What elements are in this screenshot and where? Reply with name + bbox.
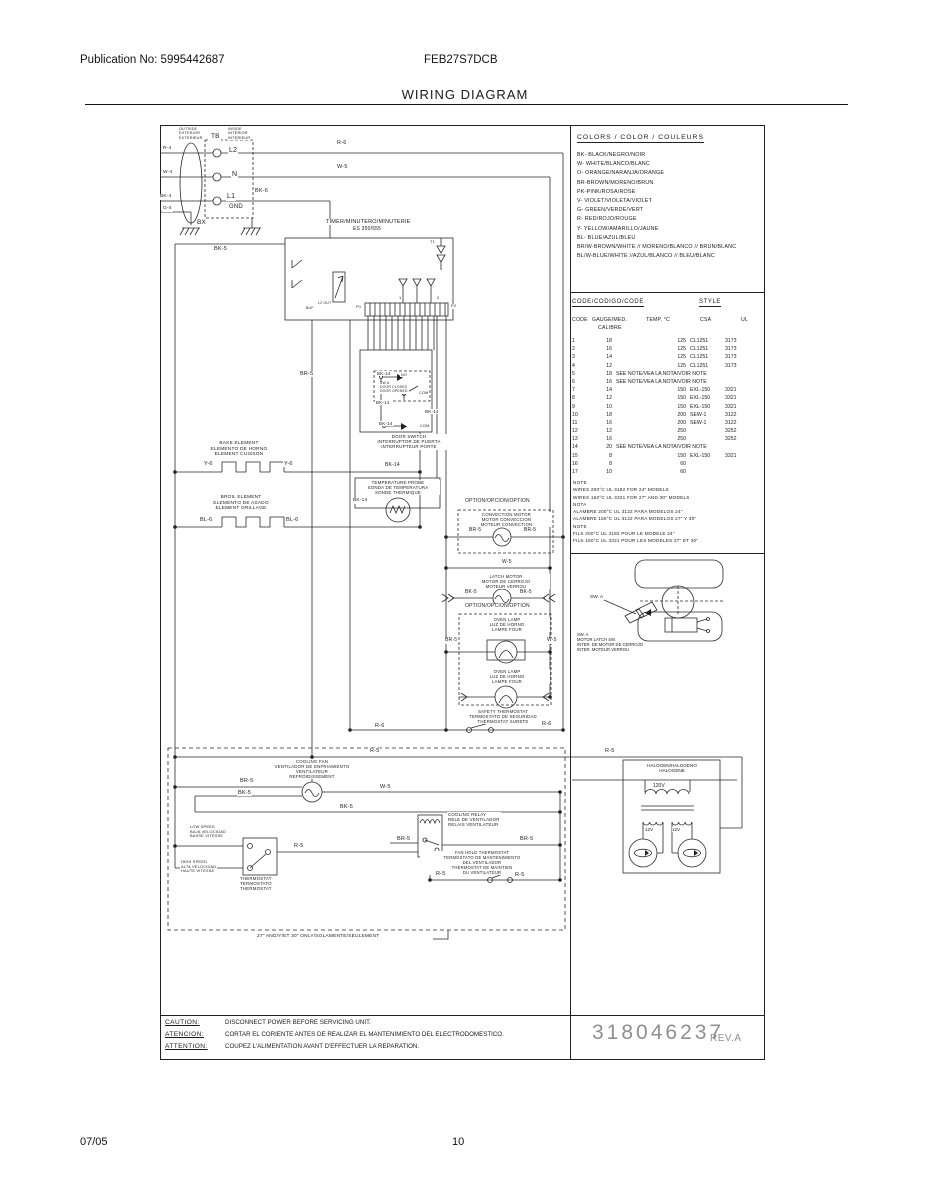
cell-temp: 125 [612, 338, 686, 344]
caution-text: DISCONNECT POWER BEFORE SERVICING UNIT. [225, 1019, 371, 1026]
terminal-l2 [213, 149, 221, 157]
cell-gauge: 12 [586, 395, 612, 401]
cell-note: SEE NOTE/VEA LA NOTA/VOIR NOTE [616, 371, 707, 377]
latch-switch-body [665, 618, 697, 632]
schematic-label: BK-14 [376, 371, 392, 376]
schematic-label: BL-6 [199, 517, 213, 523]
note-line: WIRES 150°C UL 3321 FOR 27" AND 30" MODE… [573, 494, 698, 501]
cell-gauge: 14 [586, 387, 612, 393]
code-table-rows: 1 18 125 CL1251 3173 2 16 125 CL1251 317… [572, 338, 772, 477]
code-table-style-header: STYLE [699, 299, 721, 307]
cell-temp: 250 [612, 436, 686, 442]
schematic-label: NO [400, 373, 408, 377]
code-table-row: 2 16 125 CL1251 3173 [572, 346, 772, 354]
cell-gauge: 12 [586, 363, 612, 369]
schematic-label: OPTION/OPCION/OPTION [464, 499, 531, 505]
schematic-label: W-5 [336, 164, 349, 170]
revision-label: REV.A [710, 1033, 742, 1044]
footer-page-number: 10 [452, 1136, 464, 1148]
color-code-line: W- WHITE/BLANCO/BLANC [577, 160, 736, 169]
schematic-label: L1 [226, 193, 236, 201]
cell-gauge: 10 [586, 469, 612, 475]
color-code-line: V- VIOLET/VIOLETA/VIOLET [577, 197, 736, 206]
cell-ul: 3321 [725, 404, 761, 410]
cell-temp: 125 [612, 346, 686, 352]
schematic-label: THERMOSTAT TERMOSTATO THERMOSTAT [239, 876, 273, 891]
cell-csa: CL1251 [690, 338, 730, 344]
caution-text: CORTAR EL CORIENTE ANTES DE REALIZAR EL … [225, 1031, 504, 1038]
caution-label: ATTENTION: [165, 1043, 225, 1050]
cell-csa: CL1251 [690, 363, 730, 369]
schematic-label: BR-5 [299, 371, 314, 377]
transformer-primary [645, 790, 689, 795]
schematic-label: CONVECTION MOTOR MOTOR CONVECCION MOTEUR… [461, 512, 552, 527]
schematic-label: HIGH SPEED ALTA VELOCIDAD HAUTE VITESSE [180, 860, 217, 874]
cell-gauge: 8 [586, 453, 612, 459]
halogen-lamp-2 [678, 839, 706, 867]
code-table-row: 4 12 125 CL1251 3173 [572, 363, 772, 371]
schematic-label: R-5 [293, 843, 304, 849]
cell-temp: 125 [612, 363, 686, 369]
schematic-label: BK-14 [352, 498, 368, 504]
col-header-gauge: GAUGE/MED. [592, 317, 627, 323]
schematic-label: BUF [305, 306, 315, 310]
code-table-row: 14 20 SEE NOTE/VEA LA NOTA/VOIR NOTE [572, 444, 772, 452]
color-code-line: Y- YELLOW/AMARILLO/JAUNE [577, 225, 736, 234]
lamp-housing-box [487, 640, 525, 660]
cell-ul: 3252 [725, 436, 761, 442]
color-code-line: R- RED/ROJO/ROUGE [577, 215, 736, 224]
note-line: ALAMBRE 150°C UL 3122 PARA MODELOS 27" Y… [573, 515, 698, 522]
schematic-label: BL-6 [285, 517, 299, 523]
cell-ul: 3173 [725, 346, 761, 352]
terminal-l1 [213, 197, 221, 205]
wire-notes: NOTE WIRES 200°C UL 3182 FOR 24" MODELS … [573, 479, 698, 545]
schematic-label: BR-5 [523, 528, 537, 534]
schematic-label: W-5 [546, 638, 558, 644]
schematic-label: BR-5 [468, 528, 482, 534]
note-line: NOTA [573, 501, 698, 508]
schematic-label: BAKE ELEMENT ELEMENTO DE HORNO ELEMENT C… [188, 441, 290, 458]
schematic-label: N [231, 171, 238, 179]
color-code-line: G- GREEN/VERDE/VERT [577, 206, 736, 215]
caution-block: CAUTION:DISCONNECT POWER BEFORE SERVICIN… [165, 1019, 504, 1055]
code-table-row: 8 12 150 EXL-150 3321 [572, 395, 772, 403]
schematic-label: BK-4 [159, 194, 172, 200]
timer-internals [292, 238, 445, 303]
schematic-label: R-4 [162, 146, 172, 152]
cell-gauge: 16 [586, 346, 612, 352]
note-line: FILS 200°C UL 3182 POUR LE MODELE 24" [573, 530, 698, 537]
code-table-row: 11 16 200 SEW-1 3122 [572, 420, 772, 428]
cell-gauge: 18 [586, 338, 612, 344]
caution-row: ATENCION:CORTAR EL CORIENTE ANTES DE REA… [165, 1031, 504, 1043]
schematic-label: OVEN LAMP LUZ DE HORNO LAMPE FOUR [464, 669, 550, 684]
code-table-row: 3 14 125 CL1251 3173 [572, 354, 772, 362]
latch-sw-label: SW. A [590, 595, 603, 600]
cell-temp: 150 [612, 453, 686, 459]
cell-gauge: 16 [586, 420, 612, 426]
schematic-label: BK-5 [339, 804, 354, 810]
schematic-label: W-5 [501, 560, 513, 566]
color-code-line: BR/W-BROWN/WHITE // MORENO/BLANCO // BRU… [577, 243, 736, 252]
caution-label: ATENCION: [165, 1031, 225, 1038]
cell-temp: 60 [612, 461, 686, 467]
schematic-label: BK-5 [237, 790, 252, 796]
note-line: NOTE [573, 479, 698, 486]
diagram-border [161, 126, 765, 1060]
schematic-label: BK-5 [519, 590, 533, 596]
schematic-label: Y-6 [283, 461, 294, 467]
col-header-ul: UL [741, 317, 748, 323]
cell-csa: CL1251 [690, 346, 730, 352]
cell-gauge: 14 [586, 354, 612, 360]
cell-ul: 3122 [725, 420, 761, 426]
schematic-label: TIMER/MINUTERO/MINUTERIE [325, 219, 412, 225]
schematic-label: TB [210, 133, 221, 141]
schematic-label: SW.A DOOR CLOSED DOOR OPENED [379, 382, 409, 394]
schematic-label: DOOR SWITCH INTERRUPTOR DE PUERTA INTERR… [358, 434, 460, 450]
schematic-label: BK-5 [213, 246, 228, 252]
code-table-row: 9 10 150 EXL-150 3321 [572, 404, 772, 412]
cell-csa: EXL-150 [690, 404, 730, 410]
schematic-label: SAFETY THERMOSTAT TERMOSTATO DE SEGURIDA… [452, 709, 554, 724]
code-table-title: CODE/CODIGO/CODE [572, 299, 644, 307]
halogen-lamp-1 [629, 839, 657, 867]
cell-csa: EXL-150 [690, 395, 730, 401]
cell-temp: 125 [612, 354, 686, 360]
cell-temp: 150 [612, 387, 686, 393]
schematic-label: BK-14 [424, 409, 440, 414]
schematic-label: L2 OUT [317, 301, 332, 305]
caution-text: COUPEZ L'ALIMENTATION AVANT D'EFFECTUER … [225, 1043, 419, 1050]
schematic-label: OUTSIDE EXTERIOR EXTERIEUR [178, 127, 204, 140]
ground-symbols [180, 228, 261, 235]
code-table-row: 13 16 250 3252 [572, 436, 772, 444]
cell-note: SEE NOTE/VEA LA NOTA/VOIR NOTE [616, 379, 707, 385]
schematic-label: R-6 [541, 721, 552, 727]
cell-gauge: 18 [586, 371, 612, 377]
terminal-n [213, 173, 221, 181]
relay-coil [420, 820, 440, 824]
schematic-label: T1 [429, 240, 436, 245]
schematic-label: BR-5 [519, 836, 534, 842]
schematic-label: BK-14 [378, 421, 394, 426]
schematic-label: COM [419, 424, 430, 428]
schematic-label: COOLING RELAY RELE DE VENTILADOR RELAIS … [447, 812, 501, 827]
color-code-line: BR-BROWN/MORENO/BRUN [577, 179, 736, 188]
cell-gauge: 10 [586, 404, 612, 410]
cell-temp: 200 [612, 420, 686, 426]
schematic-label: 2 [436, 296, 440, 301]
cell-temp: 200 [612, 412, 686, 418]
schematic-label: BR-5 [444, 638, 458, 644]
cell-ul: 3173 [725, 338, 761, 344]
footer-date: 07/05 [80, 1136, 108, 1148]
code-table-row: 15 8 150 EXL-150 3321 [572, 453, 772, 461]
connector-pins [370, 303, 445, 316]
schematic-label: R-5 [369, 748, 380, 754]
colors-legend-list: BK- BLACK/NEGRO/NOIR W- WHITE/BLANCO/BLA… [577, 151, 736, 261]
schematic-label: 1 [398, 296, 402, 301]
transformer-secondary [643, 822, 692, 825]
cell-csa: SEW-1 [690, 412, 730, 418]
cell-gauge: 20 [586, 444, 612, 450]
schematic-label: BR-5 [396, 836, 411, 842]
schematic-label: TEMPERATURE PROBE SONDA DE TEMPERATURA S… [356, 480, 440, 495]
code-table-row: 5 18 SEE NOTE/VEA LA NOTA/VOIR NOTE [572, 371, 772, 379]
cell-csa: EXL-150 [690, 453, 730, 459]
cell-gauge: 16 [586, 379, 612, 385]
cell-gauge: 16 [586, 436, 612, 442]
schematic-label: BK-6 [254, 188, 269, 194]
code-table-row: 17 10 60 [572, 469, 772, 477]
note-line: FILS 150°C UL 3321 POUR LES MODELES 27" … [573, 537, 698, 544]
caution-row: CAUTION:DISCONNECT POWER BEFORE SERVICIN… [165, 1019, 504, 1031]
schematic-label: W-5 [379, 784, 392, 790]
halogen-primary-voltage: 120V [653, 783, 665, 789]
cell-temp: 150 [612, 404, 686, 410]
schematic-label: BROIL ELEMENT ELEMENTO DE ASADO ELEMENT … [190, 495, 292, 512]
cell-csa: EXL-150 [690, 387, 730, 393]
cell-gauge: 8 [586, 461, 612, 467]
latch-detail-top [635, 560, 723, 588]
cell-note: SEE NOTE/VEA LA NOTA/VOIR NOTE [616, 444, 707, 450]
cell-csa: SEW-1 [690, 420, 730, 426]
note-line: NOTE [573, 523, 698, 530]
note-line: ALAMBRE 200°C UL 3122 PARA MODELOS 24" [573, 508, 698, 515]
code-table-row: 1 18 125 CL1251 3173 [572, 338, 772, 346]
schematic-label: ES 350/555 [352, 227, 382, 233]
cell-ul: 3122 [725, 412, 761, 418]
cell-gauge: 18 [586, 412, 612, 418]
halogen-secondary-voltage-2: 12V [672, 827, 680, 832]
schematic-label: W-4 [162, 170, 173, 176]
col-header-code: CODE [572, 317, 588, 323]
color-code-line: PK-PINK/ROSA/ROSE [577, 188, 736, 197]
schematic-label: BK-14 [384, 463, 401, 469]
schematic-label: OVEN LAMP LUZ DE HORNO LAMPE FOUR [464, 617, 550, 632]
cell-ul: 3321 [725, 387, 761, 393]
code-table-row: 12 12 250 3252 [572, 428, 772, 436]
schematic-label: BK-14 [375, 400, 391, 405]
schematic-label: R-5 [435, 871, 446, 877]
cell-temp: 250 [612, 428, 686, 434]
schematic-label: R-5 [514, 872, 525, 878]
cell-temp: 150 [612, 395, 686, 401]
cell-ul: 3321 [725, 453, 761, 459]
probe-symbol [386, 498, 410, 522]
latch-detail-bottom [638, 612, 722, 641]
schematic-label: P1 [355, 305, 362, 310]
cooling-fan-motor-symbol [302, 782, 322, 802]
schematic-label: COM [418, 391, 429, 395]
power-cord-symbol [180, 143, 202, 223]
color-code-line: BL- BLUE/AZUL/BLEU [577, 234, 736, 243]
schematic-label: Y-6 [203, 461, 214, 467]
col-header-csa: CSA [700, 317, 711, 323]
cell-ul: 3173 [725, 363, 761, 369]
part-number: 318046237 [592, 1021, 724, 1045]
schematic-label: R-6 [336, 140, 347, 146]
caution-row: ATTENTION:COUPEZ L'ALIMENTATION AVANT D'… [165, 1043, 504, 1055]
schematic-label: INSIDE INTERIOR INTERIEUR [227, 127, 251, 140]
page: Publication No: 5995442687 FEB27S7DCB WI… [0, 0, 927, 1200]
code-table-row: 10 18 200 SEW-1 3122 [572, 412, 772, 420]
schematic-label: OPTION/OPCION/OPTION [464, 604, 531, 610]
colors-legend-title: COLORS / COLOR / COULEURS [577, 134, 704, 143]
latch-caption: SW. A MOTOR LATCH SW. INTER. DE MOTOR DE… [577, 633, 643, 653]
code-table-row: 16 8 60 [572, 461, 772, 469]
cell-gauge: 12 [586, 428, 612, 434]
schematic-label: G-4 [162, 206, 173, 212]
schematic-label: LATCH MOTOR MOTOR DE CERROJO MOTEUR VERR… [462, 574, 550, 589]
color-code-line: O- ORANGE/NARANJA/ORANGE [577, 169, 736, 178]
halogen-title: HALOGEN/HALOGENO HALOGENE [633, 763, 711, 774]
schematic-label: BX [196, 219, 207, 227]
col-header-temp: TEMP. °C [646, 317, 670, 323]
timer-connector-strip [365, 303, 448, 316]
halogen-secondary-voltage-1: 12V [645, 827, 653, 832]
schematic-label: BK-5 [464, 590, 478, 596]
code-table-row: 7 14 150 EXL-150 3321 [572, 387, 772, 395]
cell-ul: 3252 [725, 428, 761, 434]
color-code-line: BK- BLACK/NEGRO/NOIR [577, 151, 736, 160]
schematic-label: 27" AND/Y/ET 30" ONLY/SOLAMENTE/SEULEMEN… [256, 934, 380, 940]
schematic-label: P2 [450, 304, 457, 309]
color-code-line: BL/W-BLUE/WHITE //AZUL/BLANCO // BLEU/BL… [577, 252, 736, 261]
schematic-label: BR-5 [239, 778, 254, 784]
schematic-label: COOLING FAN VENTILADOR DE ENFRIAMIENTO V… [255, 759, 369, 779]
caution-label: CAUTION: [165, 1019, 225, 1026]
cell-ul: 3321 [725, 395, 761, 401]
col-subheader-calibre: CALIBRE [598, 325, 622, 331]
code-table-row: 6 16 SEE NOTE/VEA LA NOTA/VOIR NOTE [572, 379, 772, 387]
schematic-label: GND [228, 204, 244, 211]
cell-temp: 60 [612, 469, 686, 475]
note-line: WIRES 200°C UL 3182 FOR 24" MODELS [573, 486, 698, 493]
connector-drop-wires [368, 316, 434, 350]
schematic-label: L2 [228, 147, 238, 155]
schematic-label: LOW SPEED BAJA VELOCIDAD BASSE VITESSE [189, 825, 227, 839]
cell-csa: CL1251 [690, 354, 730, 360]
schematic-label: R-6 [374, 723, 385, 729]
schematic-label: R-5 [604, 748, 615, 754]
cell-ul: 3173 [725, 354, 761, 360]
